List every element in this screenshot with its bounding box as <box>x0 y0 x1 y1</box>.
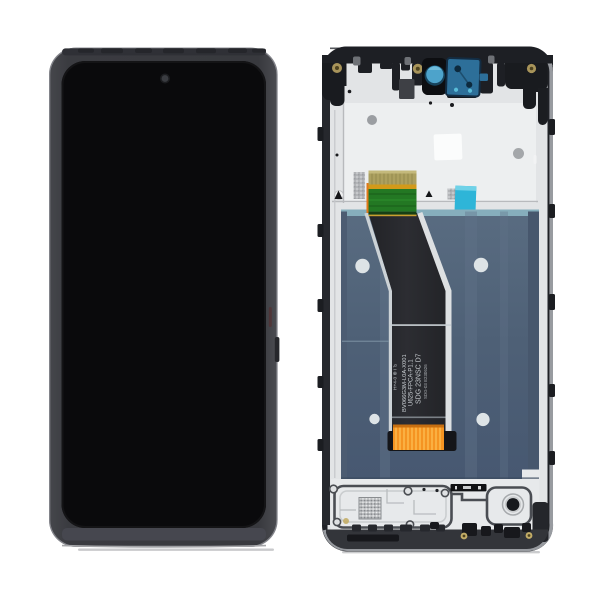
svg-text:SDG-03 E230626: SDG-03 E230626 <box>423 364 428 399</box>
svg-text:U625-FPCA-P1.1: U625-FPCA-P1.1 <box>409 359 415 406</box>
svg-text:BV066G3M-L0A-X001: BV066G3M-L0A-X001 <box>402 354 408 412</box>
svg-text:H+4-0 ⊕ I Ъ: H+4-0 ⊕ I Ъ <box>393 363 399 390</box>
svg-text:SDG 23NSC D7: SDG 23NSC D7 <box>416 353 423 404</box>
